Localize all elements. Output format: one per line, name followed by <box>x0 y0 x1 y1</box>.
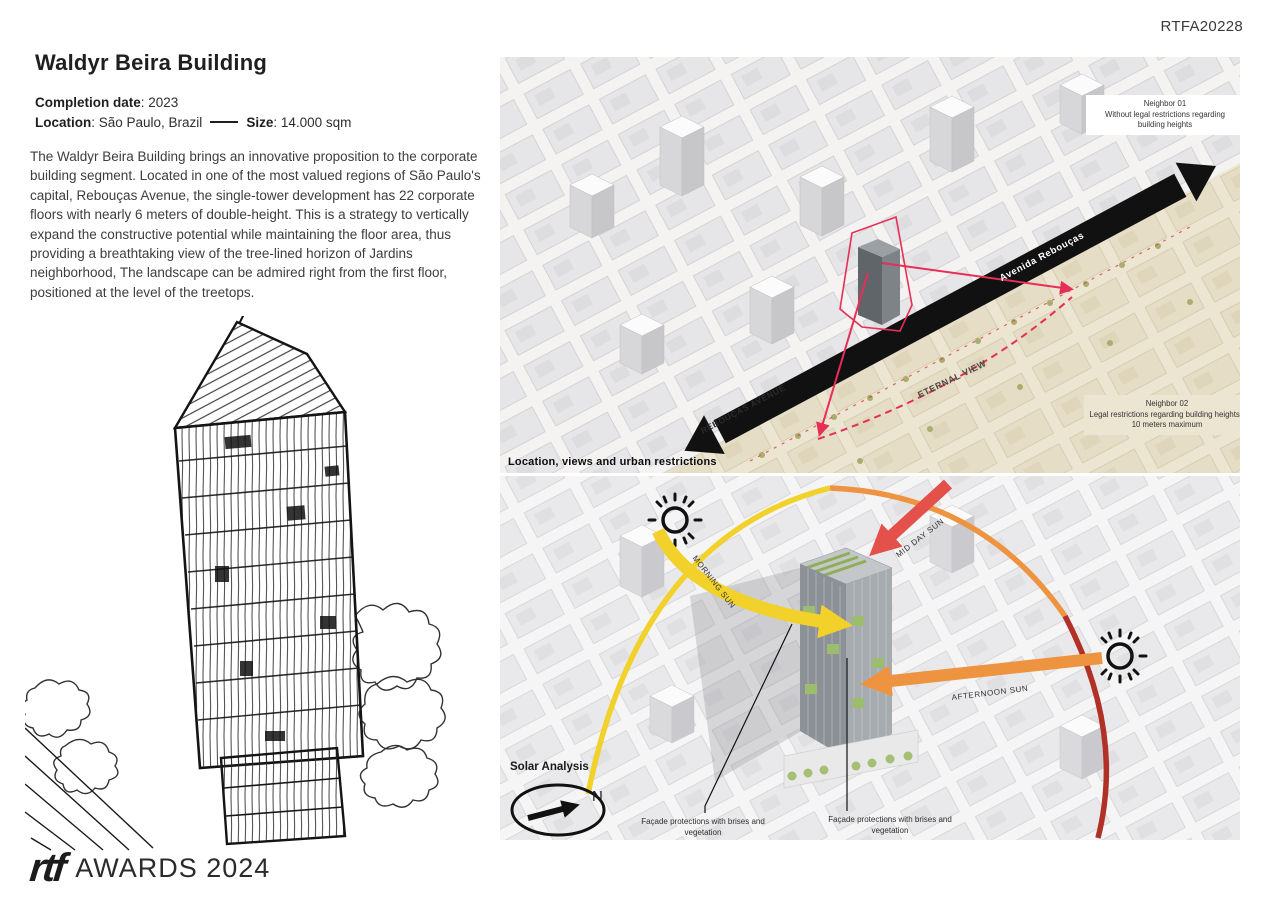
meta-completion-value: : 2023 <box>141 95 179 110</box>
rtf-awards-logo: rtf AWARDS 2024 <box>30 846 270 891</box>
building-sketch <box>25 316 480 851</box>
presentation-board: RTFA20228 Waldyr Beira Building Completi… <box>0 0 1273 900</box>
neighbor2-note: Neighbor 02 Legal restrictions regarding… <box>1084 395 1240 435</box>
meta-location-label: Location <box>35 115 91 130</box>
meta-size-value: : 14.000 sqm <box>273 115 351 130</box>
neighbor1-desc: Without legal restrictions regarding bui… <box>1091 110 1239 131</box>
meta-separator <box>210 121 238 123</box>
meta-completion-label: Completion date <box>35 95 141 110</box>
facade-protection-note-2: Façade protections with brises and veget… <box>815 814 965 836</box>
solar-analysis-panel: Solar Analysis N MORNING SUN MID DAY SUN… <box>500 476 1240 840</box>
neighbor2-desc: Legal restrictions regarding building he… <box>1089 410 1240 431</box>
neighbor1-note: Neighbor 01 Without legal restrictions r… <box>1086 95 1240 135</box>
awards-logo-text: AWARDS 2024 <box>75 853 270 884</box>
meta-location-value: : São Paulo, Brazil <box>91 115 202 130</box>
solar-analysis-title: Solar Analysis <box>510 761 589 773</box>
page-title: Waldyr Beira Building <box>35 50 267 76</box>
project-description: The Waldyr Beira Building brings an inno… <box>30 147 488 302</box>
entry-code: RTFA20228 <box>1161 18 1243 35</box>
meta-completion: Completion date: 2023 <box>35 93 351 113</box>
neighbor2-title: Neighbor 02 <box>1089 399 1240 410</box>
location-map-panel: Avenida Rebouças REBOUÇAS AVENUE ETERNAL… <box>500 57 1240 473</box>
north-label: N <box>592 788 603 805</box>
facade-protection-note-1: Façade protections with brises and veget… <box>628 816 778 838</box>
neighbor1-title: Neighbor 01 <box>1091 99 1239 110</box>
rtf-logo-icon: rtf <box>28 846 66 891</box>
project-meta: Completion date: 2023 Location: São Paul… <box>35 93 351 133</box>
solar-analysis-graphic <box>500 476 1240 840</box>
meta-location-size: Location: São Paulo, BrazilSize: 14.000 … <box>35 113 351 133</box>
location-map-caption: Location, views and urban restrictions <box>508 456 717 468</box>
meta-size-label: Size <box>246 115 273 130</box>
